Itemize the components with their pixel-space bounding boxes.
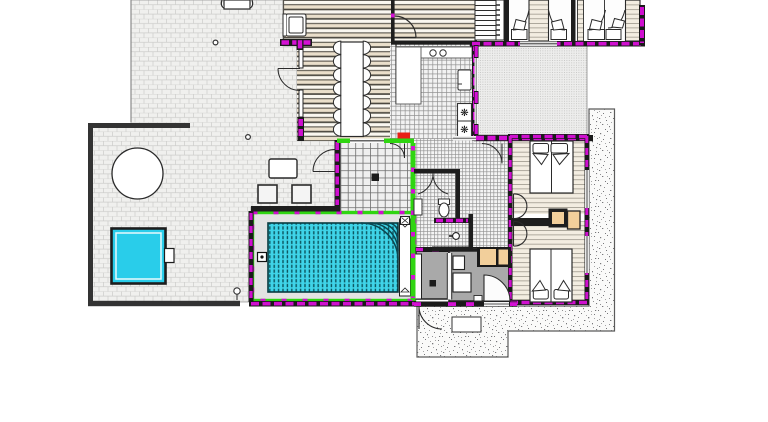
svg-text:❋: ❋ [460, 108, 468, 119]
svg-text:❋: ❋ [460, 125, 468, 136]
